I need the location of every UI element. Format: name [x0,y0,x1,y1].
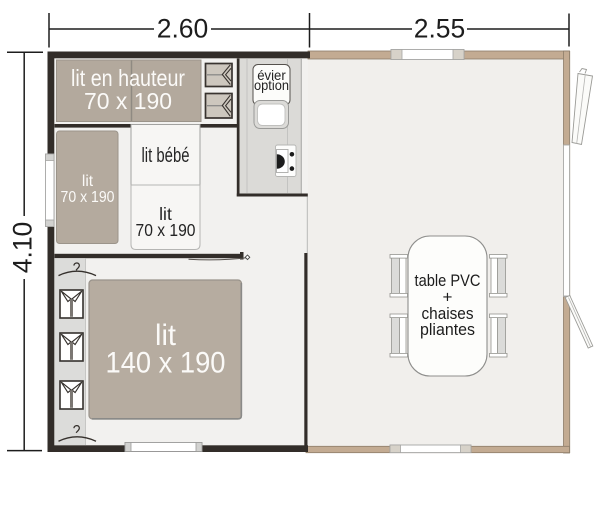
svg-text:4.10: 4.10 [8,222,38,274]
svg-text:lit: lit [82,173,94,190]
svg-text:70 x 190: 70 x 190 [136,220,196,240]
svg-text:lit bébé: lit bébé [142,145,190,167]
svg-text:70 x 190: 70 x 190 [61,189,115,206]
svg-text:pliantes: pliantes [420,320,475,339]
svg-text:2.60: 2.60 [157,14,209,44]
svg-text:140 x 190: 140 x 190 [106,347,226,380]
svg-text:2.55: 2.55 [414,14,466,44]
svg-text:option: option [254,77,289,93]
svg-text:70 x 190: 70 x 190 [84,88,172,114]
